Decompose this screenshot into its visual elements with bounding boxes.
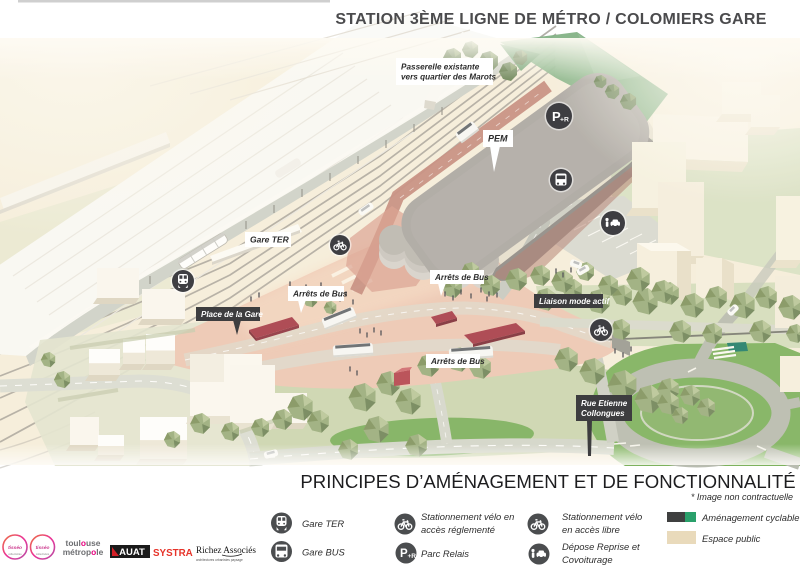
svg-text:Stationnement vélo en: Stationnement vélo en [421,511,514,522]
svg-text:SYSTRA: SYSTRA [153,548,193,559]
svg-text:PEM: PEM [488,134,508,144]
svg-text:Arrêts de Bus: Arrêts de Bus [430,357,485,366]
svg-text:Espace public: Espace public [702,533,761,544]
svg-text:+R: +R [408,553,417,560]
svg-text:STATION 3ÈME LIGNE DE MÉTRO /: STATION 3ÈME LIGNE DE MÉTRO / COLOMIERS … [335,9,766,28]
svg-text:Arrêts de Bus: Arrêts de Bus [434,273,489,282]
svg-text:AUAT: AUAT [119,547,145,558]
svg-text:tisséo: tisséo [36,545,50,551]
svg-text:accès réglementé: accès réglementé [421,524,495,535]
svg-text:métropole: métropole [63,547,104,557]
svg-text:architectures urbanistes paysa: architectures urbanistes paysage [196,558,243,562]
svg-text:Passerelle existante: Passerelle existante [401,62,480,71]
svg-text:Liaison mode actif: Liaison mode actif [539,297,611,306]
svg-text:Aménagement cyclable: Aménagement cyclable [701,512,799,523]
svg-text:collectivités: collectivités [36,552,50,556]
svg-text:Rue Etienne: Rue Etienne [581,399,628,408]
svg-text:tisséo: tisséo [8,545,22,551]
svg-text:Dépose Reprise et: Dépose Reprise et [562,541,640,552]
svg-text:Arrêts de Bus: Arrêts de Bus [292,288,348,298]
svg-text:Gare TER: Gare TER [250,234,290,244]
svg-text:Place de la Gare: Place de la Gare [201,310,263,319]
svg-text:vers quartier des Marots: vers quartier des Marots [401,72,497,81]
svg-text:Parc Relais: Parc Relais [421,548,469,559]
svg-text:Stationnement vélo: Stationnement vélo [562,511,642,522]
svg-text:en accès libre: en accès libre [562,524,620,535]
svg-text:Richez Associés: Richez Associés [196,545,256,555]
svg-text:Gare BUS: Gare BUS [302,547,345,558]
svg-text:Covoiturage: Covoiturage [562,554,613,565]
svg-text:collectivités: collectivités [8,552,22,556]
svg-text:Gare TER: Gare TER [302,518,344,529]
svg-text:+R: +R [560,117,569,124]
svg-text:Collongues: Collongues [581,409,625,418]
svg-text:PRINCIPES D’AMÉNAGEMENT ET DE: PRINCIPES D’AMÉNAGEMENT ET DE FONCTIONNA… [300,471,795,492]
svg-text:* Image non contractuelle: * Image non contractuelle [691,492,793,502]
